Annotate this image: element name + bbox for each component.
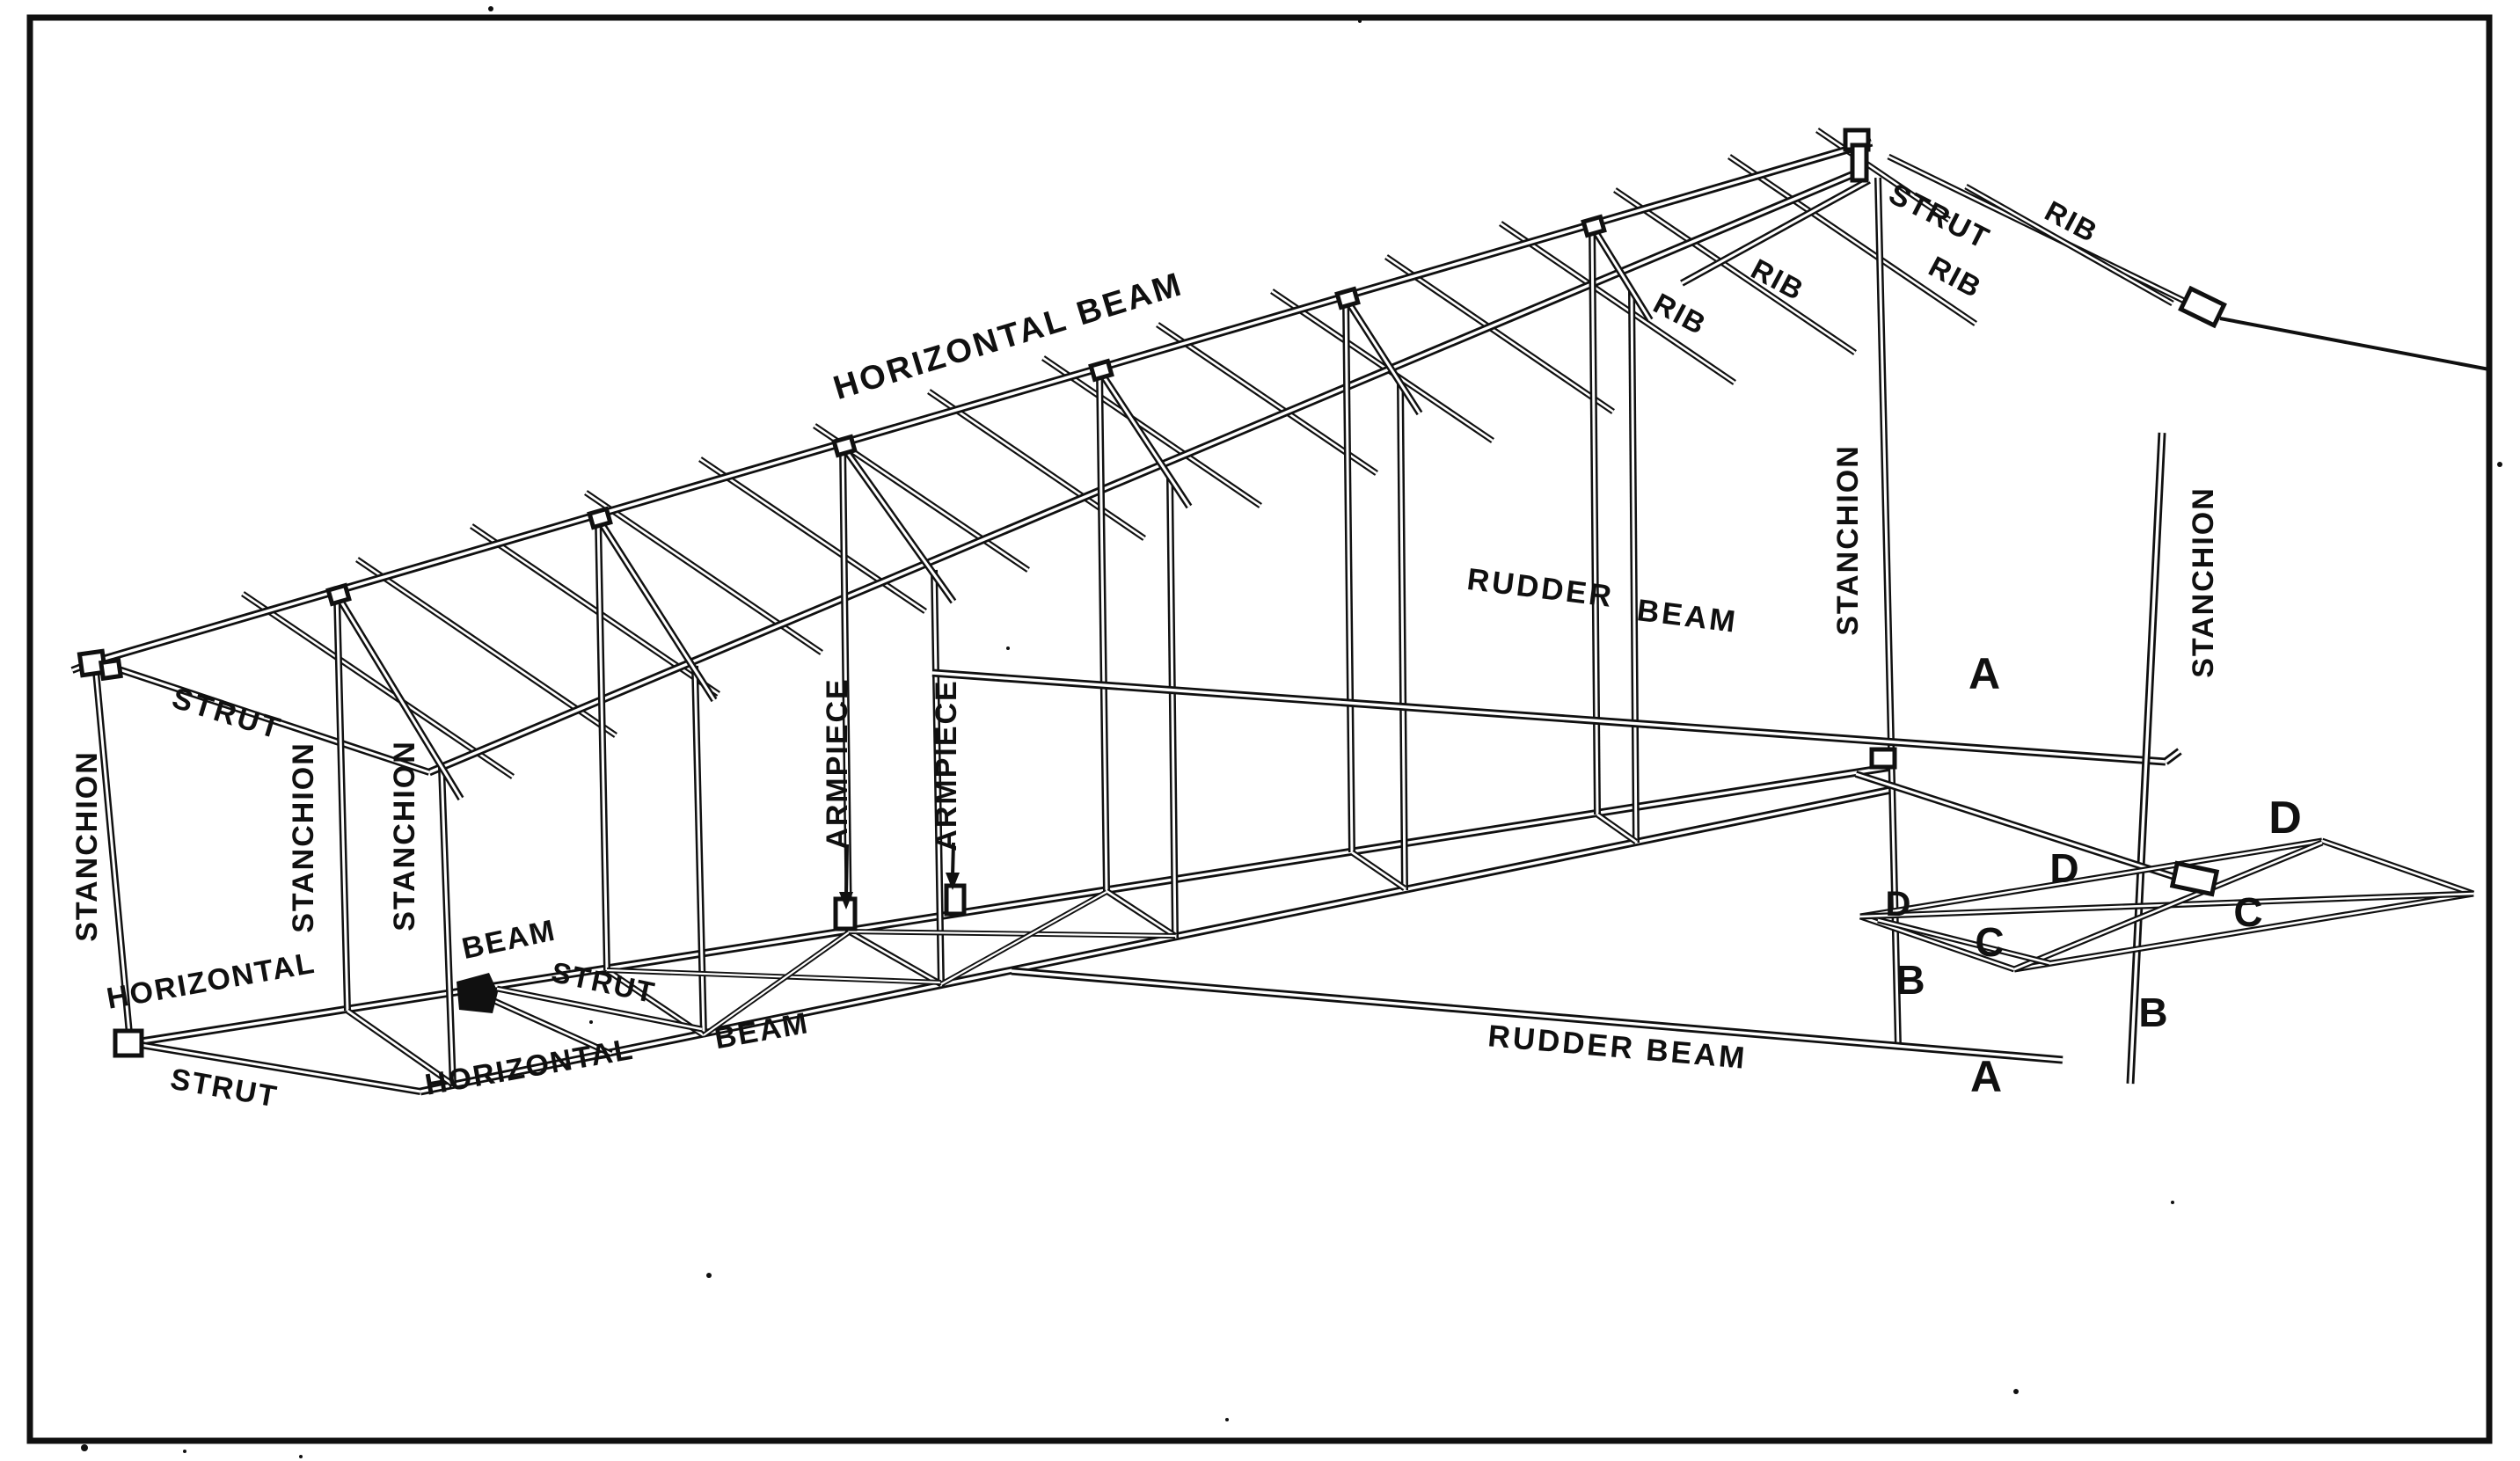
diagram-page: HORIZONTAL BEAMSTRUTSTANCHIONSTANCHIONST…	[0, 0, 2520, 1461]
fitting	[328, 586, 349, 604]
speck	[1006, 646, 1010, 650]
speck	[706, 1273, 712, 1278]
member-group-ribs	[243, 130, 1976, 777]
speck	[1225, 1418, 1229, 1421]
speck	[2013, 1389, 2019, 1394]
label-beam-mid: BEAM	[459, 913, 559, 966]
label-strut-bottom-left: STRUT	[168, 1063, 281, 1114]
fitting	[1091, 362, 1112, 380]
lashing-blob	[457, 973, 498, 1013]
fitting	[946, 886, 964, 914]
speck	[589, 1020, 593, 1024]
speck	[488, 6, 493, 11]
label-armpiece-1: ARMPIECE	[821, 677, 854, 849]
member-group-overhang-ribs	[1888, 157, 2217, 317]
border-rect	[30, 18, 2489, 1441]
fitting	[1852, 145, 1866, 180]
label-rib-4: RIB	[2040, 194, 2104, 249]
fitting	[2180, 289, 2224, 325]
fitting	[1872, 749, 1895, 767]
speck	[299, 1455, 303, 1458]
label-strut-top-right: STRUT	[1883, 177, 1995, 256]
label-horizontal-mid: HORIZONTAL	[104, 946, 318, 1016]
label-beam-bottom: BEAM	[712, 1006, 812, 1056]
airframe-diagram: HORIZONTAL BEAMSTRUTSTANCHIONSTANCHIONST…	[0, 0, 2520, 1461]
member-group-rudder-beams	[932, 673, 2180, 1060]
frame-members	[72, 130, 2473, 1092]
fitting	[834, 437, 855, 456]
label-letter-c-1: C	[2233, 889, 2262, 935]
label-letter-d-2: D	[2049, 845, 2078, 891]
label-stanchion-left-2: STANCHION	[287, 741, 320, 933]
thin-lines	[2220, 318, 2489, 369]
plate-border	[30, 18, 2489, 1441]
label-letter-d-1: D	[2268, 793, 2302, 844]
speck	[183, 1450, 186, 1453]
label-strut-top-left: STRUT	[168, 682, 286, 747]
label-stanchion-left-1: STANCHION	[70, 750, 104, 942]
label-letter-b-2: B	[2138, 990, 2167, 1035]
label-stanchion-left-3: STANCHION	[388, 740, 421, 931]
speck	[1358, 19, 1362, 23]
member-group-rudder-brace	[1856, 774, 2188, 881]
fitting	[2173, 864, 2217, 895]
fitting	[1583, 217, 1604, 236]
label-stanchion-right-2: STANCHION	[2187, 486, 2220, 678]
label-letter-a-top: A	[1969, 649, 2000, 698]
label-stanchion-right-1: STANCHION	[1831, 444, 1865, 636]
member-group-bottom-diagonals	[607, 892, 1175, 1035]
joint-blob	[457, 973, 498, 1013]
member-group-rudder-frame	[1860, 841, 2473, 969]
label-horizontal-beam-top: HORIZONTAL BEAM	[829, 266, 1187, 407]
fitting	[1337, 289, 1358, 308]
speck	[81, 1444, 88, 1451]
label-beam-mid-right: BEAM	[1635, 593, 1740, 639]
speck	[2497, 462, 2502, 467]
label-letter-a-bottom: A	[1970, 1052, 2002, 1101]
label-letter-b-1: B	[1895, 957, 1925, 1003]
label-letter-d-3: D	[1886, 885, 1911, 924]
speck	[2171, 1201, 2174, 1204]
fitting	[115, 1031, 142, 1056]
label-letter-c-2: C	[1975, 919, 2004, 965]
fitting	[101, 661, 121, 679]
label-armpiece-2: ARMPIECE	[930, 679, 963, 851]
fitting	[589, 509, 610, 528]
